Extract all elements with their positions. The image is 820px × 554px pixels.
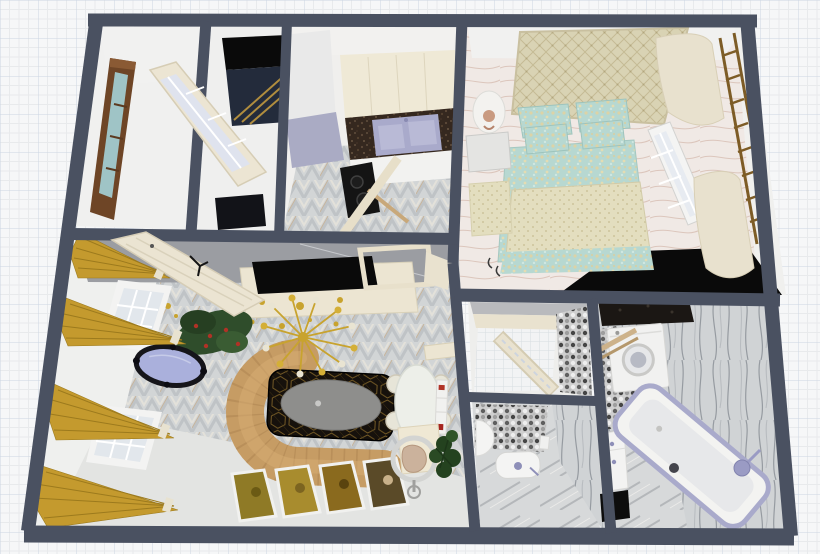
toilet-room[interactable] (472, 400, 604, 532)
bedroom[interactable] (458, 18, 786, 299)
toilet[interactable] (496, 451, 541, 479)
living-room[interactable] (28, 232, 474, 532)
wall-outer-bottom[interactable] (24, 534, 794, 537)
wall-bedroom-south[interactable] (455, 295, 780, 300)
dark-bench[interactable] (215, 194, 266, 230)
floorplan-canvas (0, 0, 820, 554)
pillow (580, 120, 625, 149)
coffee-table[interactable] (266, 369, 395, 442)
nightstand[interactable] (466, 132, 511, 172)
tv[interactable] (252, 256, 378, 294)
wall-wc-toilet[interactable] (468, 397, 596, 401)
wardrobe-gold-trim[interactable] (222, 35, 287, 126)
shower-control[interactable] (669, 463, 679, 473)
pillow (524, 124, 569, 154)
washing-machine[interactable] (607, 323, 669, 393)
upper-cabinets[interactable] (340, 50, 455, 118)
wc[interactable] (468, 300, 592, 398)
wc-mosaic-wall (556, 306, 592, 396)
paper-holder[interactable] (539, 436, 549, 450)
fridge-unit[interactable] (286, 112, 344, 168)
foot-blanket (506, 182, 650, 256)
wall-outer-top[interactable] (88, 20, 757, 21)
double-sink[interactable] (372, 114, 442, 156)
kitchen[interactable] (280, 18, 460, 240)
table-lamp[interactable] (473, 91, 505, 133)
bedroom-bench[interactable] (469, 181, 512, 236)
bathroom[interactable] (592, 296, 788, 534)
door-handle (150, 244, 154, 248)
